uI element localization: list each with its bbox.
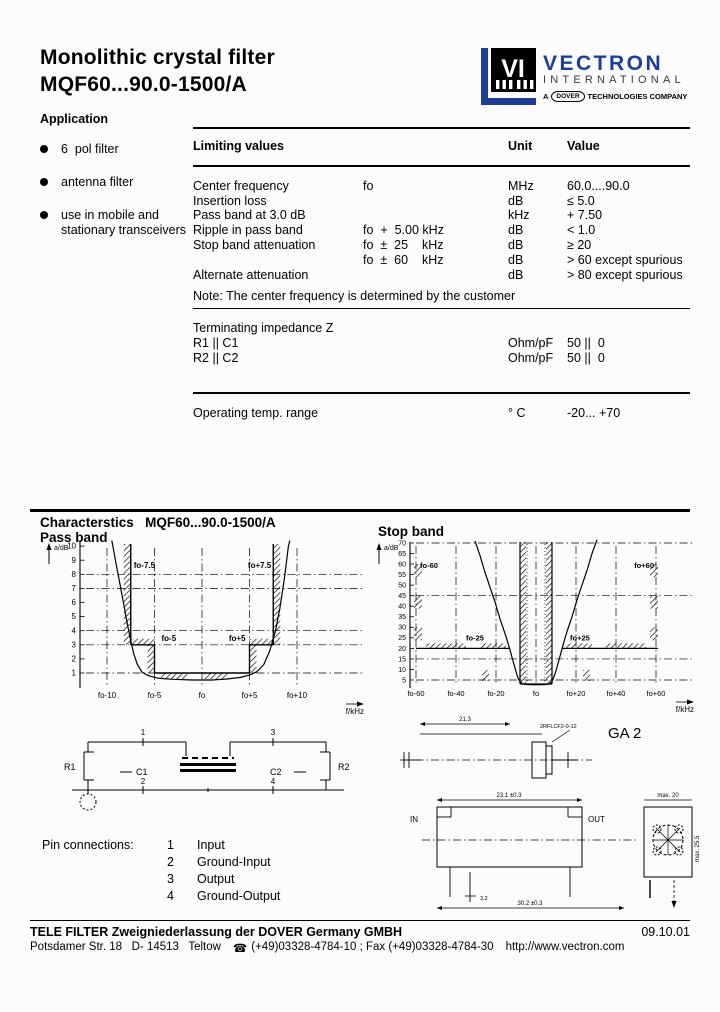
svg-text:fo: fo — [533, 689, 539, 698]
col-limiting-values: Limiting values — [193, 139, 363, 154]
doc-title: Monolithic crystal filter MQF60...90.0-1… — [40, 44, 275, 98]
svg-text:50: 50 — [398, 583, 406, 590]
tagline-a: A — [543, 92, 548, 101]
pin-row: Pin connections: 1 Input — [42, 837, 280, 854]
table-row: Ripple in pass bandfo + 5.00 kHz dB< 1.0 — [193, 223, 690, 238]
svg-text:fo-25: fo-25 — [466, 633, 484, 642]
svg-text:3: 3 — [271, 728, 276, 737]
svg-text:1: 1 — [72, 669, 77, 678]
svg-text:max. 20: max. 20 — [657, 793, 679, 799]
svg-text:fo+10: fo+10 — [287, 691, 308, 700]
stopband-title: Stop band — [378, 524, 444, 539]
application-item: antenna filter — [40, 175, 192, 190]
svg-text:fo+20: fo+20 — [567, 689, 586, 698]
svg-text:3: 3 — [72, 640, 77, 649]
svg-text:3.2: 3.2 — [480, 896, 488, 902]
footer-phone: (+49)03328-4784-10 ; Fax (+49)03328-4784… — [251, 941, 493, 955]
svg-text:10: 10 — [67, 542, 76, 551]
svg-text:7: 7 — [72, 584, 77, 593]
footer-company: TELE FILTER Zweigniederlassung der DOVER… — [30, 925, 402, 939]
svg-text:4: 4 — [271, 777, 276, 786]
svg-text:40: 40 — [398, 604, 406, 611]
footer-line2: Potsdamer Str. 18 D- 14513 Teltow ☎ (+49… — [30, 941, 690, 955]
bullet-icon — [40, 145, 48, 153]
svg-text:8: 8 — [72, 570, 77, 579]
svg-text:35: 35 — [398, 614, 406, 621]
application-heading: Application — [40, 112, 192, 126]
svg-text:15: 15 — [398, 656, 406, 663]
svg-text:2: 2 — [141, 777, 146, 786]
footer-address: Potsdamer Str. 18 D- 14513 Teltow — [30, 941, 221, 955]
table-header-row: Limiting values Unit Value — [193, 129, 690, 165]
package-svg: 21.32RFLCF2-0-12GA 223.1 ±0.3INOUT3.230.… — [392, 712, 704, 912]
bullet-icon — [40, 211, 48, 219]
section-divider — [30, 509, 690, 512]
svg-text:fo+60: fo+60 — [647, 689, 666, 698]
vectron-logo: VI VECTRON INTERNATIONAL A DOVER TECHNOL… — [478, 48, 687, 113]
svg-text:20: 20 — [398, 646, 406, 653]
svg-text:fo-60: fo-60 — [407, 689, 424, 698]
vectron-brand-sub: INTERNATIONAL — [543, 74, 687, 87]
svg-text:fo+5: fo+5 — [229, 634, 246, 643]
svg-text:23.1 ±0.3: 23.1 ±0.3 — [497, 793, 523, 799]
passband-chart-svg: a/dB10987654321fo-10fo-5fofo+5fo+10f/kHz… — [40, 538, 372, 718]
svg-text:fo+5: fo+5 — [242, 691, 258, 700]
svg-text:2RFLCF2-0-12: 2RFLCF2-0-12 — [540, 724, 577, 730]
svg-text:C2: C2 — [270, 767, 282, 777]
table-row: Operating temp. range ° C -20... +70 — [193, 406, 690, 421]
table-rule-mid — [193, 392, 690, 394]
footer-url: http://www.vectron.com — [506, 941, 625, 955]
svg-text:21.3: 21.3 — [459, 717, 471, 723]
svg-text:30: 30 — [398, 625, 406, 632]
svg-text:1: 1 — [141, 728, 146, 737]
svg-text:4: 4 — [72, 626, 77, 635]
application-item-text: 6 pol filter — [61, 142, 119, 157]
schematic-diagram: R1R2C1C21324 — [58, 726, 378, 826]
svg-text:5: 5 — [402, 677, 406, 684]
pin-row: 3Output — [42, 871, 280, 888]
svg-text:60: 60 — [398, 561, 406, 568]
application-section: Application 6 pol filter antenna filter … — [40, 112, 192, 256]
svg-text:fo+7.5: fo+7.5 — [248, 561, 272, 570]
table-row: Stop band attenuationfo ± 25 kHz dB≥ 20 — [193, 238, 690, 253]
table-row: R2 || C2 Ohm/pF 50 || 0 — [193, 351, 690, 366]
svg-text:10: 10 — [398, 667, 406, 674]
table-note: Note: The center frequency is determined… — [193, 289, 690, 303]
svg-text:max. 25.5: max. 25.5 — [695, 835, 701, 862]
application-item-text: use in mobile and stationary transceiver… — [61, 208, 192, 238]
pin-row: 4Ground-Output — [42, 888, 280, 905]
col-value: Value — [567, 139, 690, 154]
vectron-tagline: A DOVER TECHNOLOGIES COMPANY — [543, 91, 687, 102]
characteristics-label: Characterstics — [40, 515, 134, 530]
passband-chart: a/dB10987654321fo-10fo-5fofo+5fo+10f/kHz… — [40, 538, 372, 718]
svg-text:OUT: OUT — [588, 815, 605, 824]
svg-text:C1: C1 — [136, 767, 148, 777]
svg-text:R2: R2 — [338, 762, 350, 772]
svg-text:9: 9 — [72, 556, 77, 565]
svg-text:a/dB: a/dB — [384, 545, 399, 552]
table-row: R1 || C1 Ohm/pF 50 || 0 — [193, 336, 690, 351]
package-drawing: 21.32RFLCF2-0-12GA 223.1 ±0.3INOUT3.230.… — [392, 712, 704, 912]
footer-date: 09.10.01 — [641, 925, 690, 939]
svg-text:fo-5: fo-5 — [148, 691, 162, 700]
limiting-values-table: Limiting values Unit Value Center freque… — [193, 127, 690, 421]
svg-text:65: 65 — [398, 551, 406, 558]
limits-rows: Center frequencyfo MHz60.0....90.0 Inser… — [193, 179, 690, 283]
col-unit: Unit — [508, 139, 567, 154]
svg-text:R1: R1 — [64, 762, 76, 772]
pin-connections-heading: Pin connections: — [42, 837, 167, 854]
svg-text:2: 2 — [72, 655, 77, 664]
characteristics-model: MQF60...90.0-1500/A — [145, 515, 276, 530]
table-row: Pass band at 3.0 dB kHz+ 7.50 — [193, 208, 690, 223]
impedance-heading: Terminating impedance Z — [193, 321, 690, 336]
svg-text:fo+40: fo+40 — [607, 689, 626, 698]
application-item: use in mobile and stationary transceiver… — [40, 208, 192, 238]
svg-text:fo+25: fo+25 — [570, 633, 590, 642]
svg-text:fo-7.5: fo-7.5 — [134, 561, 156, 570]
doc-title-line2: MQF60...90.0-1500/A — [40, 71, 275, 98]
table-rule-note — [193, 308, 690, 309]
svg-text:5: 5 — [72, 612, 77, 621]
svg-text:25: 25 — [398, 635, 406, 642]
stopband-chart: a/dB706560555045403530252015105fo-60fo-4… — [370, 538, 702, 718]
svg-text:fo+60: fo+60 — [634, 561, 654, 570]
svg-text:VI: VI — [501, 55, 525, 83]
vectron-vi-mark-icon: VI — [478, 48, 536, 113]
table-row: Alternate attenuation dB> 80 except spur… — [193, 268, 690, 283]
svg-text:30.2 ±0.3: 30.2 ±0.3 — [518, 901, 544, 907]
doc-title-line1: Monolithic crystal filter — [40, 44, 275, 71]
svg-text:fo-5: fo-5 — [162, 634, 177, 643]
footer-rule — [30, 920, 690, 921]
application-item: 6 pol filter — [40, 142, 192, 157]
footer-line1: TELE FILTER Zweigniederlassung der DOVER… — [30, 925, 690, 939]
svg-text:fo: fo — [199, 691, 206, 700]
pin-row: 2Ground-Input — [42, 854, 280, 871]
vectron-logo-text: VECTRON INTERNATIONAL A DOVER TECHNOLOGI… — [543, 48, 687, 102]
bullet-icon — [40, 178, 48, 186]
svg-text:IN: IN — [410, 815, 418, 824]
table-rule-head — [193, 165, 690, 167]
pin-connections: Pin connections: 1 Input 2Ground-Input 3… — [42, 837, 280, 905]
table-row: Insertion loss dB≤ 5.0 — [193, 194, 690, 209]
svg-text:fo-40: fo-40 — [447, 689, 464, 698]
footer: TELE FILTER Zweigniederlassung der DOVER… — [30, 920, 690, 955]
table-row: fo ± 60 kHz dB> 60 except spurious — [193, 253, 690, 268]
tagline-rest: TECHNOLOGIES COMPANY — [588, 92, 688, 101]
svg-text:fo-20: fo-20 — [487, 689, 504, 698]
svg-text:55: 55 — [398, 572, 406, 579]
schematic-svg: R1R2C1C21324 — [58, 726, 378, 826]
svg-text:f/kHz: f/kHz — [346, 707, 364, 716]
svg-text:fo-60: fo-60 — [420, 561, 438, 570]
svg-text:fo-10: fo-10 — [98, 691, 117, 700]
svg-text:45: 45 — [398, 593, 406, 600]
svg-text:70: 70 — [398, 540, 406, 547]
phone-icon: ☎ — [233, 941, 247, 955]
svg-text:GA 2: GA 2 — [608, 725, 641, 742]
svg-text:6: 6 — [72, 598, 77, 607]
dover-badge: DOVER — [551, 91, 584, 102]
table-row: Center frequencyfo MHz60.0....90.0 — [193, 179, 690, 194]
application-item-text: antenna filter — [61, 175, 133, 190]
stopband-chart-svg: a/dB706560555045403530252015105fo-60fo-4… — [370, 538, 702, 718]
vectron-brand: VECTRON — [543, 54, 687, 74]
